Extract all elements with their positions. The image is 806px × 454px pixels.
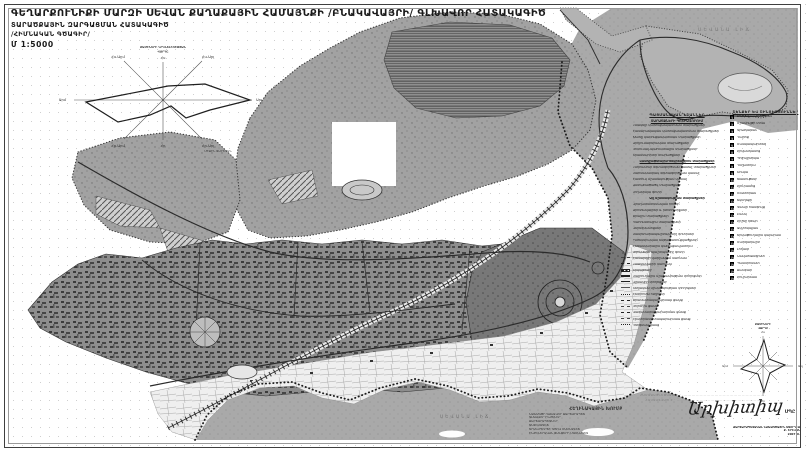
legend-zone-item[interactable]: Կոյուղու ցանց [621,305,733,308]
legend-swatch [621,124,630,127]
legend-swatch [621,154,630,157]
legend-object-label: Ճամբար [737,269,752,272]
legend-zone-item[interactable]: Լանդշաֆտային-ռեկրեացիոն տարածքներ [621,160,733,163]
legend-zone-item[interactable]: Հետիոտն ուղիներ [621,293,733,296]
legend-object-item[interactable]: 24 Հուշարձան [730,276,801,280]
legend-object-item[interactable]: 15 Բանկ [730,213,801,217]
legend-swatch [621,251,630,254]
legend-object-item[interactable]: 19 Մարզադաշտ [730,241,801,245]
legend-zone-item[interactable]: Արոտավայրեր և խոտհարքներ [621,209,733,212]
legend-zone-label: Գյուղատնտեսական հողեր [633,203,680,206]
legend-zone-item[interactable]: Պահուստային տարածքներ [621,221,733,224]
legend-zone-label: Բնակավայրի սահման [633,263,672,266]
legend-object-item[interactable]: 10 Խանութներ [730,178,801,182]
legend-zone-item[interactable]: Երկաթուղի [621,269,733,272]
legend-zone-item[interactable]: Բնակելի կառուցապատման տարածքներ [621,124,733,127]
legend-zone-label: Գազամատակարարման ցանց [633,311,686,314]
legend-swatch [621,142,630,145]
legend-zone-item[interactable]: Գերեզմանոցներ [621,227,733,230]
legend-zone-item[interactable]: Համայնքի վարչական սահման [621,257,733,260]
title-block: ԳԵՂԱՐՔՈՒՆԻՔԻ ՄԱՐԶԻ ՍԵՎԱՆ ՔԱՂԱՔԱՅԻՆ ՀԱՄԱՅ… [11,8,611,49]
legend-swatch [621,294,630,297]
legend-swatch [621,227,630,230]
credits-block: ՀԵՂԻՆԱԿԱՅԻՆ ԽՈՒՄԲ ՆԱԽԱԳԾԻ ԳԼԽԱՎՈՐ ՃԱՐՏԱՐ… [529,406,663,436]
legend-object-number: 9 [730,171,734,175]
legend-object-number: 14 [730,206,734,210]
firm-signature: Արխիտիպ [686,396,784,419]
legend-zone-label: Հատուկ նշանակության կանաչ [633,178,688,181]
legend-object-number: 1 [730,115,734,119]
legend-object-label: Ավտոկայան [737,227,758,230]
legend-object-label: Հիվանդանոց [737,150,761,153]
legend-swatch [621,136,630,139]
legend-zone-label: Արոտավայրեր և խոտհարքներ [633,209,688,212]
legend-swatch [621,269,630,272]
legend-objects-header: ՇԵՆՔԵՐ ԵՎ ՇԻՆՈՒԹՅՈՒՆՆԵՐ [730,109,801,114]
rose-label-w: Արմ [59,98,67,102]
legend-zone-item[interactable]: Գազամատակարարման ցանց [621,311,733,314]
legend-object-number: 4 [730,136,734,140]
legend-object-number: 2 [730,122,734,126]
legend-object-label: Շուկա [737,171,748,174]
legend-object-label: Ռեստորան [737,192,756,195]
legend-zone-label: Կոմունալ-պահեստային տարածքներ [633,148,698,151]
rose2-label-w: Արմ [722,364,728,368]
legend-swatch [621,281,630,284]
legend-object-label: Բանկ [737,213,747,216]
legend-object-item[interactable]: 1 Քաղաքապետարան [730,115,801,119]
shore-islet [439,431,465,438]
legend-swatch [621,287,630,290]
terrain-clearing [332,122,396,186]
map-title: ԳԵՂԱՐՔՈՒՆԻՔԻ ՄԱՐԶԻ ՍԵՎԱՆ ՔԱՂԱՔԱՅԻՆ ՀԱՄԱՅ… [11,8,611,19]
legend-swatch [621,312,630,315]
rose-label-ne: Հս-Արլ [202,55,215,59]
legend-zone-label: Ջրամատակարարման ցանց [633,299,683,302]
legend-zone-label: Հասարակական կառուցապատման տարածքներ [633,130,719,133]
rose-label-e: Արլ [256,98,263,102]
legend-swatch [621,148,630,151]
legend-object-item[interactable]: 18 Երկաթուղային կայարան [730,234,801,238]
legend-object-item[interactable]: 21 Նավահանգիստ [730,255,801,259]
legend-object-number: 16 [730,220,734,224]
legend-swatch [621,179,630,182]
legend-object-label: Պոլիկլինիկա [737,157,759,160]
legend-object-item[interactable]: 17 Ավտոկայան [730,227,801,231]
legend-swatch [621,263,630,266]
legend-object-item[interactable]: 6 Հիվանդանոց [730,150,801,154]
legend-zone-label: Այլ նշանակության տարածքներ [621,197,733,200]
legend-object-label: Երկաթուղային կայարան [737,234,781,237]
legend-object-item[interactable]: 2 Մշակույթի տուն [730,122,801,126]
legend-object-label: Հուշարձան [737,276,757,279]
firm-suffix: ՍՊԸ [785,410,796,415]
legend-zone-label: Ոռոգման ցանց [633,324,660,327]
legend-object-label: Մարզադաշտ [737,241,760,244]
rose-label-n: Հս [161,56,166,60]
legend-zone-item[interactable]: Տեղական նշանակության փողոցներ [621,287,733,290]
legend-swatch [621,215,630,218]
legend-object-number: 23 [730,269,734,273]
legend-object-label: Հրշեջ դեպո [737,220,758,223]
legend-object-label: Գրադարան [737,129,758,132]
legend-zone-label: Տրանսպորտի տարածքներ [633,154,681,157]
legend-zone-label: Երկաթուղի [633,269,653,272]
rose-label-nw: Հս-Արմ [111,55,125,59]
legend-swatch [621,257,630,260]
rose2-label-n: Հս [761,330,765,334]
legend-zone-label: Արդյունաբերական տարածքներ [633,142,690,145]
legend-object-number: 8 [730,164,734,168]
legend-zone-item[interactable]: Գյուղատնտեսական հողեր [621,203,733,206]
legend-swatch [621,191,630,194]
legend-zone-label: Անտառածածկ տարածքներ [633,184,682,187]
legend-object-label: Նավահանգիստ [737,255,765,258]
wind-rose-bottom: Հս Հր Արմ Արլ ՔԱՄԻՆԵՐԻ ՎԱՐԴԸ [722,322,803,403]
legend-swatch [621,130,630,133]
legend-zone-label: Խառը կառուցապատման տարածքներ [633,136,701,139]
credits-heading: ՀԵՂԻՆԱԿԱՅԻՆ ԽՈՒՄԲ [529,406,663,411]
legend-object-label: Դպրոց [737,136,749,139]
legend-zone-label: Սահմանափակ օգտագործման կանաչ [633,172,700,175]
legend-zone-item[interactable]: Տրանսպորտի տարածքներ [621,154,733,157]
legend-object-item[interactable]: 9 Շուկա [730,171,801,175]
legend-object-item[interactable]: 20 Լողափ [730,248,801,252]
legend-object-number: 11 [730,185,734,189]
legend-object-item[interactable]: 22 Պանսիոնատ [730,262,801,266]
stadium [342,180,382,200]
legend-zone-item[interactable]: Ջրային տարածքներ [621,215,733,218]
legend-swatch [621,233,630,236]
legend-zone-label: Լանդշաֆտային-ռեկրեացիոն տարածքներ [621,160,733,163]
legend-swatch [621,209,630,212]
legend-swatch [621,324,630,327]
legend-zone-item[interactable]: Այլ նշանակության տարածքներ [621,197,733,200]
lake-label-bay: ՍԵՎԱՆԱ ԼԻՃ [440,414,490,419]
legend-zone-item[interactable]: Սանիտարապաշտպանիչ գոտիներ [621,233,733,236]
legend-object-item[interactable]: 5 Մանկապարտեզ [730,143,801,147]
legend-zone-item[interactable]: Հեռանկարային կառուցապատում [621,245,733,248]
legend-zone-label: Սանիտարապաշտպանիչ գոտիներ [633,233,695,236]
map-scale: Մ 1:5000 [11,40,611,49]
legend-object-number: 3 [730,129,734,133]
legend-zone-item[interactable]: Հասարակական կառուցապատման տարածքներ [621,130,733,133]
legend-zone-label: Կոյուղու ցանց [633,305,658,308]
legend-zone-label: Ինժեներական ենթակառուցվածքներ [633,239,698,242]
legend-object-item[interactable]: 14 Կապի հանգույց [730,206,801,210]
legend-zone-item[interactable]: Գլխավոր փողոցներ [621,281,733,284]
legend-zone-item[interactable]: Անտառածածկ տարածքներ [621,184,733,187]
legend-object-item[interactable]: 4 Դպրոց [730,136,801,140]
legend-swatch [621,173,630,176]
legend-zone-label: Գերեզմանոցներ [633,227,662,230]
legend-swatch [621,185,630,188]
map-drawing-type: /ՀԻՄՆԱԿԱՆ ԳԾԱԳԻՐ/ [11,30,611,38]
legend-object-number: 15 [730,213,734,217]
legend-swatch [621,306,630,309]
rose-label-sw: Հր-Արմ [111,144,125,148]
map-subtitle: ՏԱՐԱԾՔԱՅԻՆ ԶԱՐԳԱՑՄԱՆ ՀԱՏԱԿԱԳԻԾ [11,21,611,29]
legend-swatch [621,221,630,224]
legend-zone-item[interactable]: Մայրուղային նշանակության փողոցներ [621,275,733,278]
legend-object-label: Եկեղեցի [737,199,752,202]
legend-zone-item[interactable]: Հատուկ նշանակության կանաչ [621,178,733,181]
legend-object-label: Քաղաքապետարան [737,115,772,118]
round-plaza [190,317,220,347]
legend-zone-label: Հեռանկարային կառուցապատում [633,245,693,248]
legend-object-number: 19 [730,241,734,245]
legend-zone-item[interactable]: Ջրամատակարարման ցանց [621,299,733,302]
legend-object-item[interactable]: 12 Ռեստորան [730,192,801,196]
legend-object-number: 17 [730,227,734,231]
legend-swatch [621,318,630,321]
legend-zone-label: Ջրային տարածքներ [633,215,669,218]
legend-zone-label: Համայնքի վարչական սահման [633,257,687,260]
legend-zone-label: Ափամերձ պաշտպանիչ գոտի [633,251,685,254]
legend-zone-label: Լողափնյա գոտի [633,191,662,194]
legend-object-number: 6 [730,150,734,154]
legend-object-item[interactable]: 13 Եկեղեցի [730,199,801,203]
legend-object-item[interactable]: 23 Ճամբար [730,269,801,273]
legend-object-item[interactable]: 3 Գրադարան [730,129,801,133]
credits-lines: ՆԱԽԱԳԾԻ ԳԼԽԱՎՈՐ ՃԱՐՏԱՐԱՊԵՏ ԳԼԽԱՎՈՐ ԻՆԺԵՆ… [529,413,663,436]
legend-objects-list: 1 Քաղաքապետարան 2 Մշակույթի տուն 3 Գրադա… [730,115,801,280]
legend-zone-label: Պահուստային տարածքներ [633,221,681,224]
legend-object-number: 5 [730,143,734,147]
signature-block: ԱրխիտիպՍՊԸ [688,398,802,418]
legend-zone-item[interactable]: Խառը կառուցապատման տարածքներ [621,136,733,139]
legend-zone-item[interactable]: Լողափնյա գոտի [621,191,733,194]
legend-object-number: 24 [730,276,734,280]
legend-swatch [621,300,630,303]
legend-objects: ՇԵՆՔԵՐ ԵՎ ՇԻՆՈՒԹՅՈՒՆՆԵՐ 1 Քաղաքապետարան … [730,109,801,283]
legend-swatch [621,239,630,242]
legend-object-label: Մշակույթի տուն [737,122,765,125]
legend-object-number: 20 [730,248,734,252]
credits-line: ԻՆԺԵՆԵՐԱԿԱՆ ՑԱՆՑԵՐԻ ՄԱՍՆԱԳԵՏ [529,432,663,436]
legend-object-number: 12 [730,192,734,196]
legend-zone-item[interactable]: Բնակավայրի սահման [621,263,733,266]
legend-zone-item[interactable]: Ափամերձ պաշտպանիչ գոտի [621,251,733,254]
firm-contact-line: 2007 Թ. [724,433,800,436]
legend-zone-item[interactable]: Էլեկտրամատակարարման ցանց [621,318,733,321]
legend-zone-label: Էլեկտրամատակարարման ցանց [633,318,691,321]
legend-zone-item[interactable]: Ընդհանուր օգտագործման կանաչ տարածքներ [621,166,733,169]
lake-label-main: ՍԵՎԱՆԱ ԼԻՃ [698,28,751,33]
legend-object-label: Պանսիոնատ [737,262,760,265]
legend-zones-subheader: ՏԱՐԱԾՔՆԵՐԻ ԳՈՏԻԱՎՈՐՈՒՄ [621,119,733,123]
rose2-label-e: Արլ [798,364,803,368]
rose-label-s: Հր [161,144,166,148]
legend-zone-item[interactable]: Սահմանափակ օգտագործման կանաչ [621,172,733,175]
legend-swatch [621,245,630,248]
legend-object-item[interactable]: 8 Դեղատուն [730,164,801,168]
legend-zone-label: Գլխավոր փողոցներ [633,281,668,284]
legend-swatch [621,203,630,206]
running-track [227,365,257,379]
park-rotunda [555,297,565,307]
legend-object-number: 18 [730,234,734,238]
legend-object-number: 7 [730,157,734,161]
rose-note: ՄԻՋԻՆ ՏԱՐԵԿԱՆ [204,149,232,153]
legend-object-number: 22 [730,262,734,266]
legend-object-item[interactable]: 11 Հյուրանոց [730,185,801,189]
legend-zone-item[interactable]: Ինժեներական ենթակառուցվածքներ [621,239,733,242]
legend-object-label: Խանութներ [737,178,758,181]
legend-object-label: Լողափ [737,248,749,251]
legend-object-item[interactable]: 16 Հրշեջ դեպո [730,220,801,224]
legend-object-label: Հյուրանոց [737,185,755,188]
legend-zone-label: Մայրուղային նշանակության փողոցներ [633,275,702,278]
legend-zones: ՊԱՅՄԱՆԱԿԱՆ ՆՇԱՆՆԵՐ ՏԱՐԱԾՔՆԵՐԻ ԳՈՏԻԱՎՈՐՈՒ… [621,112,733,330]
peninsula-pond [718,73,772,103]
legend-object-label: Կապի հանգույց [737,206,765,209]
map-sheet: Հս Հր Արմ Արլ Հս-Արմ Հս-Արլ Հր-Արմ Հր-Ար… [0,0,806,454]
legend-object-item[interactable]: 7 Պոլիկլինիկա [730,157,801,161]
legend-zone-item[interactable]: Կոմունալ-պահեստային տարածքներ [621,148,733,151]
legend-zones-header: ՊԱՅՄԱՆԱԿԱՆ ՆՇԱՆՆԵՐ [621,112,733,117]
legend-zone-label: Հետիոտն ուղիներ [633,293,665,296]
legend-zone-label: Ընդհանուր օգտագործման կանաչ տարածքներ [633,166,716,169]
terrain-hillside [72,12,596,264]
legend-swatch [621,167,630,170]
legend-object-number: 13 [730,199,734,203]
legend-zones-list: Բնակելի կառուցապատման տարածքներ Հասարակա… [621,124,733,327]
legend-object-number: 21 [730,255,734,259]
legend-object-label: Դեղատուն [737,164,756,167]
rose-title-2: ՎԱՐԴԸ [158,50,169,54]
rose-label-se: Հր-Արլ [202,144,215,148]
rose2-title-2: ՎԱՐԴԸ [758,326,768,330]
legend-zone-item[interactable]: Ոռոգման ցանց [621,324,733,327]
legend-zone-item[interactable]: Արդյունաբերական տարածքներ [621,142,733,145]
legend-object-label: Մանկապարտեզ [737,143,766,146]
legend-object-number: 10 [730,178,734,182]
legend-zone-label: Տեղական նշանակության փողոցներ [633,287,697,290]
legend-swatch [621,275,630,278]
legend-zone-label: Բնակելի կառուցապատման տարածքներ [633,124,705,127]
firm-contact: ՃԱՐՏԱՐԱՊԵՏԱԿԱՆ ՆԱԽԱԳԾԱՅԻՆ ՍՏՈՒԴԻԱ Ք. ԵՐԵ… [724,426,800,436]
